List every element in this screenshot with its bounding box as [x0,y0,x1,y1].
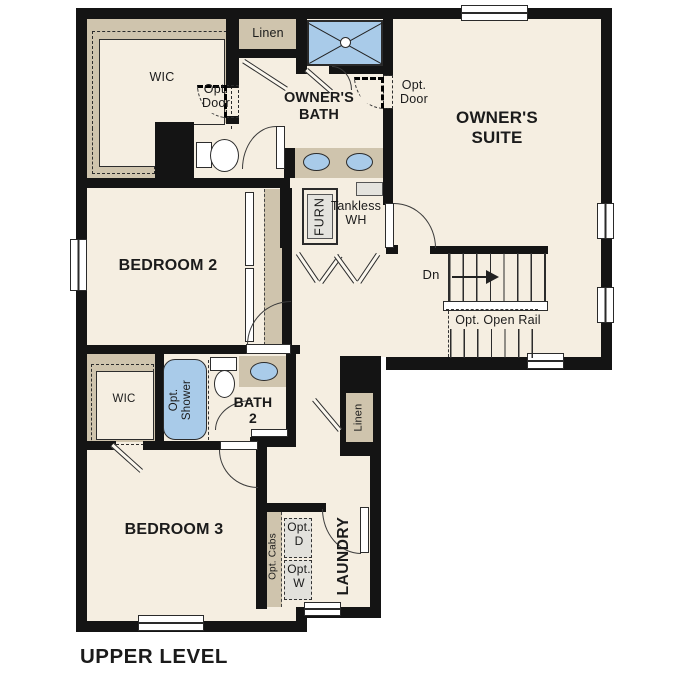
room-label-bedroom-2: BEDROOM 2 [92,257,244,275]
down-arrow-line [452,276,488,278]
stairs-label-opt-open-rail: Opt. Open Rail [450,313,546,329]
door-leaf [251,429,288,437]
shower-drain [340,37,351,48]
page-title: UPPER LEVEL [80,645,320,671]
room-label-owners-bath: OWNER'S BATH [268,90,370,126]
wall [76,8,612,19]
wall [296,19,307,74]
wall [290,345,300,354]
closet-label-linen-hall: Linen [353,395,366,441]
closet-sliding-door [245,192,254,266]
window [138,615,204,631]
room-label-bath-2: BATH 2 [224,394,282,428]
option-label-opt-cabs: Opt. Cabs [268,510,281,604]
wall [239,49,296,58]
option-label-opt-shower: Opt. Shower [168,358,200,442]
wall [226,8,239,88]
window [461,5,528,21]
wall [383,19,393,76]
wall [76,8,87,632]
option-label-opt-dryer: Opt. D [286,521,312,557]
equipment-label-furnace: FURN [313,193,328,241]
equipment-label-tankless: Tankless WH [327,199,385,231]
sink-fixture [346,153,373,171]
door-leaf [220,441,258,450]
closet-label-linen-top: Linen [243,26,293,43]
option-label-opt-door-suite: Opt. Door [391,78,437,110]
sink-fixture [303,153,330,171]
wall [286,354,296,438]
tankless-water-heater-box [356,182,383,196]
window [597,287,614,323]
stairs-label-down: Dn [418,268,444,283]
sink-fixture [250,362,278,381]
stairs-lower-flight [450,327,538,358]
toilet-tank [210,357,237,371]
floor-plan: WIC Linen OWNER'S BATH Opt. Door Opt. Do… [0,0,687,687]
option-label-opt-door-wic: Opt. Door [193,82,239,114]
wall [383,108,393,180]
toilet-bowl [210,139,239,172]
opt-shower-dashed-line [208,360,210,440]
window [70,239,87,291]
wall [76,178,290,188]
wall [76,345,246,354]
room-label-wic-upper: WIC [133,70,191,85]
door-leaf [246,344,291,354]
wic-upper-floor-lower [99,123,156,167]
window [597,203,614,239]
wall [143,441,222,450]
down-arrow-icon [486,270,499,284]
wall [386,357,612,370]
room-label-owners-suite: OWNER'S SUITE [418,108,576,150]
room-label-bedroom-3: BEDROOM 3 [98,521,250,539]
room-label-wic-lower: WIC [98,393,150,408]
room-label-laundry: LAUNDRY [335,501,353,611]
door-leaf [360,507,369,553]
stair-rail-dashed [446,309,538,312]
wall [284,148,295,178]
option-label-opt-washer: Opt. W [286,563,312,599]
door-leaf [276,126,285,169]
door-leaf [385,203,394,248]
